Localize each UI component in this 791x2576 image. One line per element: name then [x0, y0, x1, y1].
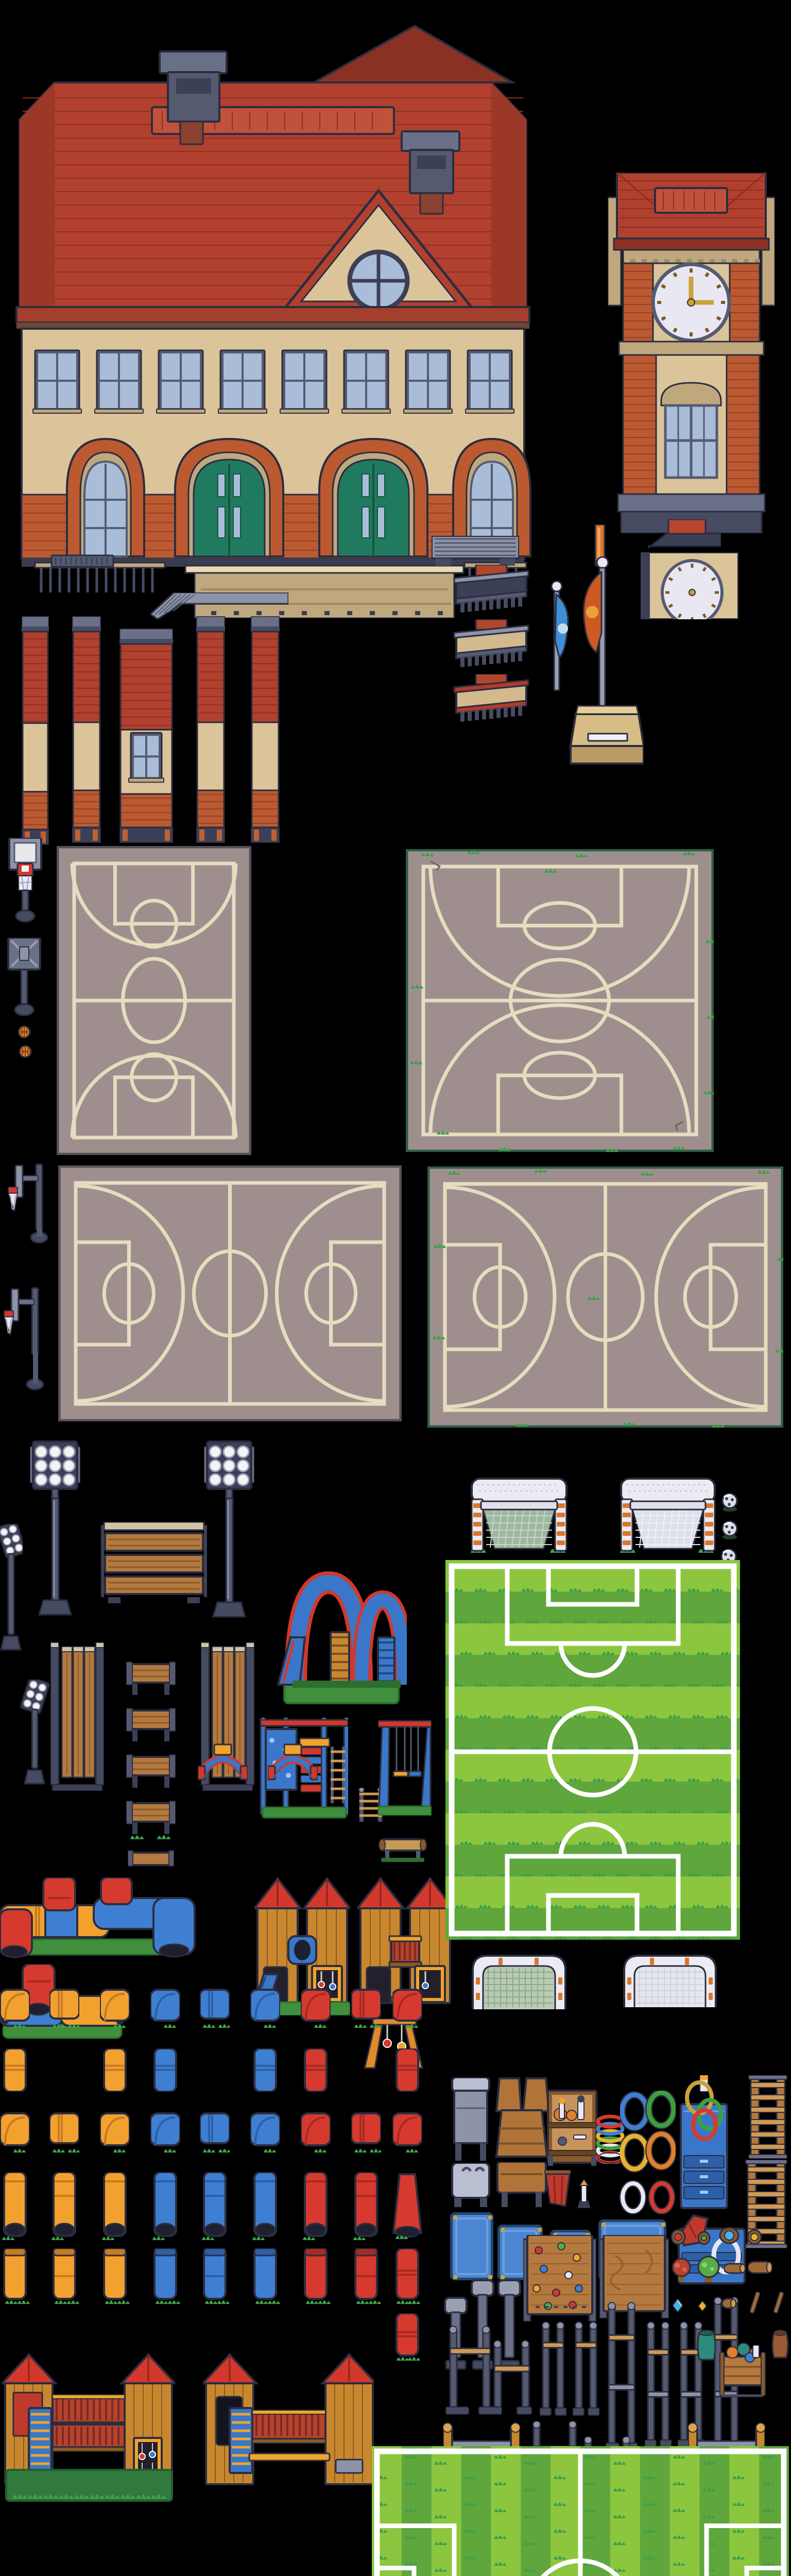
court-portrait-worn — [406, 849, 714, 1152]
tube-red-r3c8-art — [351, 2110, 381, 2154]
soccer-ball-2 — [720, 1520, 740, 1539]
play-fort-a — [2, 2352, 175, 2503]
stick-a-art — [750, 2292, 760, 2313]
tube-red-r1c8 — [351, 1987, 381, 2029]
vault-brown-big — [495, 2108, 548, 2159]
hoop-back-art — [7, 938, 41, 1025]
pullup-double — [445, 2321, 532, 2415]
tube-red-r3c8 — [351, 2110, 381, 2154]
hoop-front-art — [8, 838, 42, 925]
rings-quad-art — [620, 2091, 676, 2179]
stick-a — [750, 2292, 760, 2313]
pole-frame-2-art — [573, 2321, 599, 2417]
tube-blue-r4c5 — [200, 2172, 230, 2240]
pole-frame-2 — [573, 2321, 599, 2417]
swing-set-art — [378, 1710, 432, 1816]
soccer-ball-1 — [720, 1492, 740, 1512]
roof-fragment — [648, 519, 721, 548]
floodlight-b — [204, 1440, 254, 1618]
log-b-art — [748, 2261, 772, 2274]
bench-step-grass — [126, 1799, 176, 1840]
tube-orange-r2c1-art — [0, 2048, 30, 2092]
tube-blue-r1c4 — [150, 1987, 180, 2029]
tube-blue-r2c6-art — [250, 2048, 280, 2092]
tube-blue-r2c4 — [150, 2048, 180, 2092]
tube-red-r4c9-art — [392, 2172, 422, 2240]
tube-extra-red-art — [392, 2313, 422, 2361]
tube-blue-r1c4-art — [150, 1987, 180, 2029]
pole-tall-1 — [645, 2321, 672, 2449]
wall-strip-b — [72, 616, 101, 843]
tube-blue-r3c5 — [200, 2110, 230, 2154]
goal-front-b-art — [617, 1477, 719, 1553]
tube-orange-r5c1 — [0, 2248, 30, 2304]
tube-orange-r4c3 — [100, 2172, 130, 2240]
ladder-flat-a-art — [748, 2075, 788, 2159]
ladder-flat-a — [748, 2075, 788, 2159]
tube-red-r2c7-art — [301, 2048, 331, 2092]
vault-brown-legs — [495, 2162, 548, 2207]
tube-red-r5c8 — [351, 2248, 381, 2304]
tube-red-r2c9-art — [392, 2048, 422, 2092]
log-bench — [378, 1833, 427, 1862]
vault-gray-tall-art — [450, 2077, 491, 2161]
pole-frame-tall — [606, 2302, 638, 2452]
torch-item-art — [576, 2178, 592, 2208]
tube-red-r4c8-art — [351, 2172, 381, 2240]
tube-red-r3c7-art — [301, 2110, 331, 2154]
wall-strip-d — [196, 616, 225, 843]
bleacher-side-l — [50, 1641, 104, 1791]
awning-dark-art — [453, 565, 529, 617]
vault-gray-low — [450, 2163, 491, 2207]
tube-red-r3c9-art — [392, 2110, 422, 2154]
stick-b-art — [773, 2292, 784, 2313]
spritesheet-canvas — [0, 0, 791, 2576]
wall-strip-window-art — [119, 629, 173, 843]
medal-green — [697, 2231, 711, 2245]
slide-double-arch-art — [277, 1555, 407, 1705]
tube-assembly-a — [0, 1877, 226, 1959]
nugget-yellow — [698, 2301, 707, 2311]
goal-top-a — [468, 1952, 571, 2009]
vent-bench — [432, 536, 519, 567]
medal-blue-art — [719, 2227, 740, 2244]
tube-orange-r5c1-art — [0, 2248, 30, 2304]
soccer-field-landscape — [372, 2446, 789, 2576]
pole-tall-1-art — [645, 2321, 672, 2449]
medal-red — [670, 2229, 686, 2245]
school-building — [5, 21, 541, 618]
arch-bridge-a — [198, 1736, 248, 1781]
pole-frame-1 — [540, 2321, 566, 2417]
eave-fragment — [150, 592, 288, 619]
flag-orange-with-base-art — [566, 556, 644, 775]
tube-blue-r2c4-art — [150, 2048, 180, 2092]
vent-bench-art — [432, 536, 519, 567]
tube-red-r5c7-art — [301, 2248, 331, 2304]
tube-orange-r4c2-art — [49, 2172, 79, 2240]
tube-red-r2c9 — [392, 2048, 422, 2092]
court-portrait-plain-art — [57, 846, 251, 1155]
cabinet-rings-art — [680, 2075, 728, 2210]
tube-orange-r2c3-art — [100, 2048, 130, 2092]
tube-red-r5c7 — [301, 2248, 331, 2304]
vault-gray-tall — [450, 2077, 491, 2161]
hoop-side-right-art — [3, 1286, 45, 1397]
cabinet-rings — [680, 2075, 728, 2210]
torch-item — [576, 2178, 592, 2208]
bench-step-1 — [126, 1660, 176, 1699]
bench-step-3 — [126, 1753, 176, 1792]
tube-orange-r3c3 — [100, 2110, 130, 2154]
tube-blue-r4c6-art — [250, 2172, 280, 2240]
goal-top-a-art — [468, 1952, 571, 2009]
basketball-2 — [19, 1045, 32, 1058]
nugget-brown-art — [722, 2298, 736, 2309]
tube-orange-r1c3 — [100, 1987, 130, 2029]
tube-red-r4c8 — [351, 2172, 381, 2240]
tube-blue-r5c5 — [200, 2248, 230, 2304]
vase-teal — [695, 2330, 718, 2362]
floodlight-side-a-art — [0, 1524, 23, 1652]
floodlight-a — [30, 1440, 80, 1616]
clock-tower-art — [608, 173, 775, 533]
tube-orange-r5c2-art — [49, 2248, 79, 2304]
tube-orange-r4c1 — [0, 2172, 30, 2240]
tube-blue-r4c5-art — [200, 2172, 230, 2240]
hoop-side-right — [3, 1286, 45, 1397]
floodlight-side-b — [19, 1680, 51, 1786]
swing-set — [378, 1710, 432, 1816]
tube-orange-r2c1 — [0, 2048, 30, 2092]
shelf-rack-art — [547, 2088, 597, 2166]
basketball-2-art — [19, 1045, 32, 1058]
wall-strip-a-art — [22, 616, 49, 845]
awning-dark — [453, 565, 529, 617]
pole-frame-1-art — [540, 2321, 566, 2417]
bleacher-back-art — [101, 1522, 207, 1603]
floodlight-side-a — [0, 1524, 23, 1652]
roof-fragment-art — [648, 519, 721, 548]
floodlight-a-art — [30, 1440, 80, 1616]
ring-white — [619, 2180, 647, 2214]
tube-red-r5c8-art — [351, 2248, 381, 2304]
tube-orange-r1c1 — [0, 1987, 30, 2029]
medal-red-art — [670, 2229, 686, 2245]
tube-blue-r4c4 — [150, 2172, 180, 2240]
tube-orange-r5c2 — [49, 2248, 79, 2304]
vase-brown-art — [770, 2330, 790, 2360]
log-a-art — [724, 2263, 746, 2274]
tube-blue-r5c4-art — [150, 2248, 180, 2304]
play-fort-b-art — [203, 2352, 374, 2485]
mat-portrait-art — [450, 2212, 493, 2280]
tube-red-r5c9 — [392, 2248, 422, 2304]
flag-orange-with-base — [566, 556, 644, 775]
red-cape — [542, 2170, 574, 2208]
tube-red-r4c7 — [301, 2172, 331, 2240]
floodlight-side-b-art — [19, 1680, 51, 1786]
basketball-1-art — [18, 1025, 31, 1039]
tube-orange-r4c2 — [49, 2172, 79, 2240]
tube-orange-r3c2-art — [49, 2110, 79, 2154]
clock-wall-fragment — [641, 552, 738, 619]
soccer-field-landscape-art — [372, 2446, 789, 2576]
tube-red-r1c7 — [301, 1987, 331, 2029]
slide-double-arch — [277, 1555, 407, 1705]
soccer-field-portrait — [445, 1560, 740, 1940]
basketball-1 — [18, 1025, 31, 1039]
stick-b — [773, 2292, 784, 2313]
tube-orange-r2c3 — [100, 2048, 130, 2092]
vase-teal-art — [695, 2330, 718, 2362]
nugget-yellow-art — [698, 2301, 707, 2311]
tube-orange-r5c3-art — [100, 2248, 130, 2304]
hoop-side-left — [7, 1162, 49, 1250]
tube-assembly-a-art — [0, 1877, 226, 1959]
wall-strip-window — [119, 629, 173, 843]
school-building-art — [5, 21, 541, 618]
bush-red-art — [670, 2258, 692, 2281]
arch-bridge-b — [268, 1736, 318, 1781]
goal-front-a — [468, 1477, 571, 1553]
soccer-field-portrait-art — [445, 1560, 740, 1940]
vault-gray-low-art — [450, 2163, 491, 2207]
log-b — [748, 2261, 772, 2274]
tube-red-r1c9-art — [392, 1987, 422, 2029]
tube-blue-r4c6 — [250, 2172, 280, 2240]
tube-blue-r1c5-art — [200, 1987, 230, 2029]
tube-blue-r3c4 — [150, 2110, 180, 2154]
gem-blue — [673, 2299, 683, 2312]
tube-red-r3c9 — [392, 2110, 422, 2154]
tube-blue-r3c6 — [250, 2110, 280, 2154]
bench-step-grass-art — [126, 1799, 176, 1840]
play-fort-b — [203, 2352, 374, 2485]
tube-blue-r5c6-art — [250, 2248, 280, 2304]
tube-red-r1c7-art — [301, 1987, 331, 2029]
tube-red-r1c8-art — [351, 1987, 381, 2029]
mat-portrait — [450, 2212, 493, 2280]
goal-top-b — [619, 1952, 721, 2007]
tube-red-r4c7-art — [301, 2172, 331, 2240]
bench-step-2 — [126, 1706, 176, 1745]
hoop-front — [8, 838, 42, 925]
shelf-rack — [547, 2088, 597, 2166]
log-bench-art — [378, 1833, 427, 1862]
play-fort-a-art — [2, 2352, 175, 2503]
tube-blue-r5c4 — [150, 2248, 180, 2304]
bush-red — [670, 2258, 692, 2281]
tube-orange-r4c1-art — [0, 2172, 30, 2240]
medal-gold-art — [747, 2229, 762, 2245]
vault-brown-legs-art — [495, 2162, 548, 2207]
arch-bridge-b-art — [268, 1736, 318, 1781]
tube-blue-r2c6 — [250, 2048, 280, 2092]
ring-red — [648, 2180, 676, 2214]
pole-frame-tall-art — [606, 2302, 638, 2452]
tube-orange-r3c1 — [0, 2110, 30, 2154]
bush-green-art — [696, 2256, 721, 2282]
court-portrait-worn-art — [406, 849, 714, 1152]
medal-blue — [719, 2227, 740, 2244]
cart-balls — [719, 2337, 766, 2401]
bench-small — [128, 1849, 174, 1871]
clock-tower — [608, 173, 775, 533]
bench-small-art — [128, 1849, 174, 1871]
tube-orange-r1c2 — [49, 1987, 79, 2029]
tube-orange-r1c1-art — [0, 1987, 30, 2029]
bleacher-back — [101, 1522, 207, 1603]
hoop-side-left-art — [7, 1162, 49, 1250]
wall-strip-a — [22, 616, 49, 845]
nugget-brown — [722, 2298, 736, 2309]
eave-fragment-art — [150, 592, 288, 619]
rings-quad — [620, 2091, 676, 2179]
bench-step-3-art — [126, 1753, 176, 1792]
hoop-back — [7, 938, 41, 1025]
ring-red-art — [648, 2180, 676, 2214]
tube-extra-red — [392, 2313, 422, 2361]
goal-top-b-art — [619, 1952, 721, 2007]
wall-strip-e — [251, 616, 280, 843]
climbwall-holds — [523, 2235, 596, 2321]
tube-orange-r5c3 — [100, 2248, 130, 2304]
court-landscape-plain-art — [58, 1165, 402, 1421]
goal-front-b — [617, 1477, 719, 1553]
court-landscape-worn — [427, 1166, 783, 1428]
tube-blue-r5c6 — [250, 2248, 280, 2304]
wall-strip-e-art — [251, 616, 280, 843]
arch-bridge-a-art — [198, 1736, 248, 1781]
tube-red-r2c7 — [301, 2048, 331, 2092]
court-portrait-plain — [57, 846, 251, 1155]
clock-wall-fragment-art — [641, 552, 738, 619]
awning-tan — [453, 619, 529, 672]
court-landscape-plain — [58, 1165, 402, 1421]
tube-orange-r3c1-art — [0, 2110, 30, 2154]
tube-orange-r4c3-art — [100, 2172, 130, 2240]
wall-strip-d-art — [196, 616, 225, 843]
floodlight-b-art — [204, 1440, 254, 1618]
wall-strip-b-art — [72, 616, 101, 843]
bench-step-2-art — [126, 1706, 176, 1745]
tube-blue-r1c5 — [200, 1987, 230, 2029]
medal-green-art — [697, 2231, 711, 2245]
tube-red-r4c9 — [392, 2172, 422, 2240]
bush-green — [696, 2256, 721, 2282]
pullup-double-art — [445, 2321, 532, 2415]
bench-step-1-art — [126, 1660, 176, 1699]
tube-blue-r5c5-art — [200, 2248, 230, 2304]
awning-red-trim-art — [453, 674, 529, 728]
goal-front-a-art — [468, 1477, 571, 1553]
red-cape-art — [542, 2170, 574, 2208]
soccer-ball-1-art — [720, 1492, 740, 1512]
vault-brown-big-art — [495, 2108, 548, 2159]
tube-blue-r3c5-art — [200, 2110, 230, 2154]
tube-red-r1c9 — [392, 1987, 422, 2029]
tube-blue-r3c4-art — [150, 2110, 180, 2154]
tube-blue-r1c6 — [250, 1987, 280, 2029]
ring-white-art — [619, 2180, 647, 2214]
tube-orange-r1c3-art — [100, 1987, 130, 2029]
tube-blue-r4c4-art — [150, 2172, 180, 2240]
gem-blue-art — [673, 2299, 683, 2312]
soccer-ball-2-art — [720, 1520, 740, 1539]
climbwall-holds-art — [523, 2235, 596, 2321]
awning-red-trim — [453, 674, 529, 728]
tube-blue-r3c6-art — [250, 2110, 280, 2154]
tube-orange-r1c2-art — [49, 1987, 79, 2029]
log-a — [724, 2263, 746, 2274]
tube-orange-r3c3-art — [100, 2110, 130, 2154]
tube-orange-r3c2 — [49, 2110, 79, 2154]
tube-red-r5c9-art — [392, 2248, 422, 2304]
bleacher-side-l-art — [50, 1641, 104, 1791]
court-landscape-worn-art — [427, 1166, 783, 1428]
tube-red-r3c7 — [301, 2110, 331, 2154]
vase-brown — [770, 2330, 790, 2360]
tube-blue-r1c6-art — [250, 1987, 280, 2029]
medal-gold — [747, 2229, 762, 2245]
awning-tan-art — [453, 619, 529, 672]
cart-balls-art — [719, 2337, 766, 2401]
